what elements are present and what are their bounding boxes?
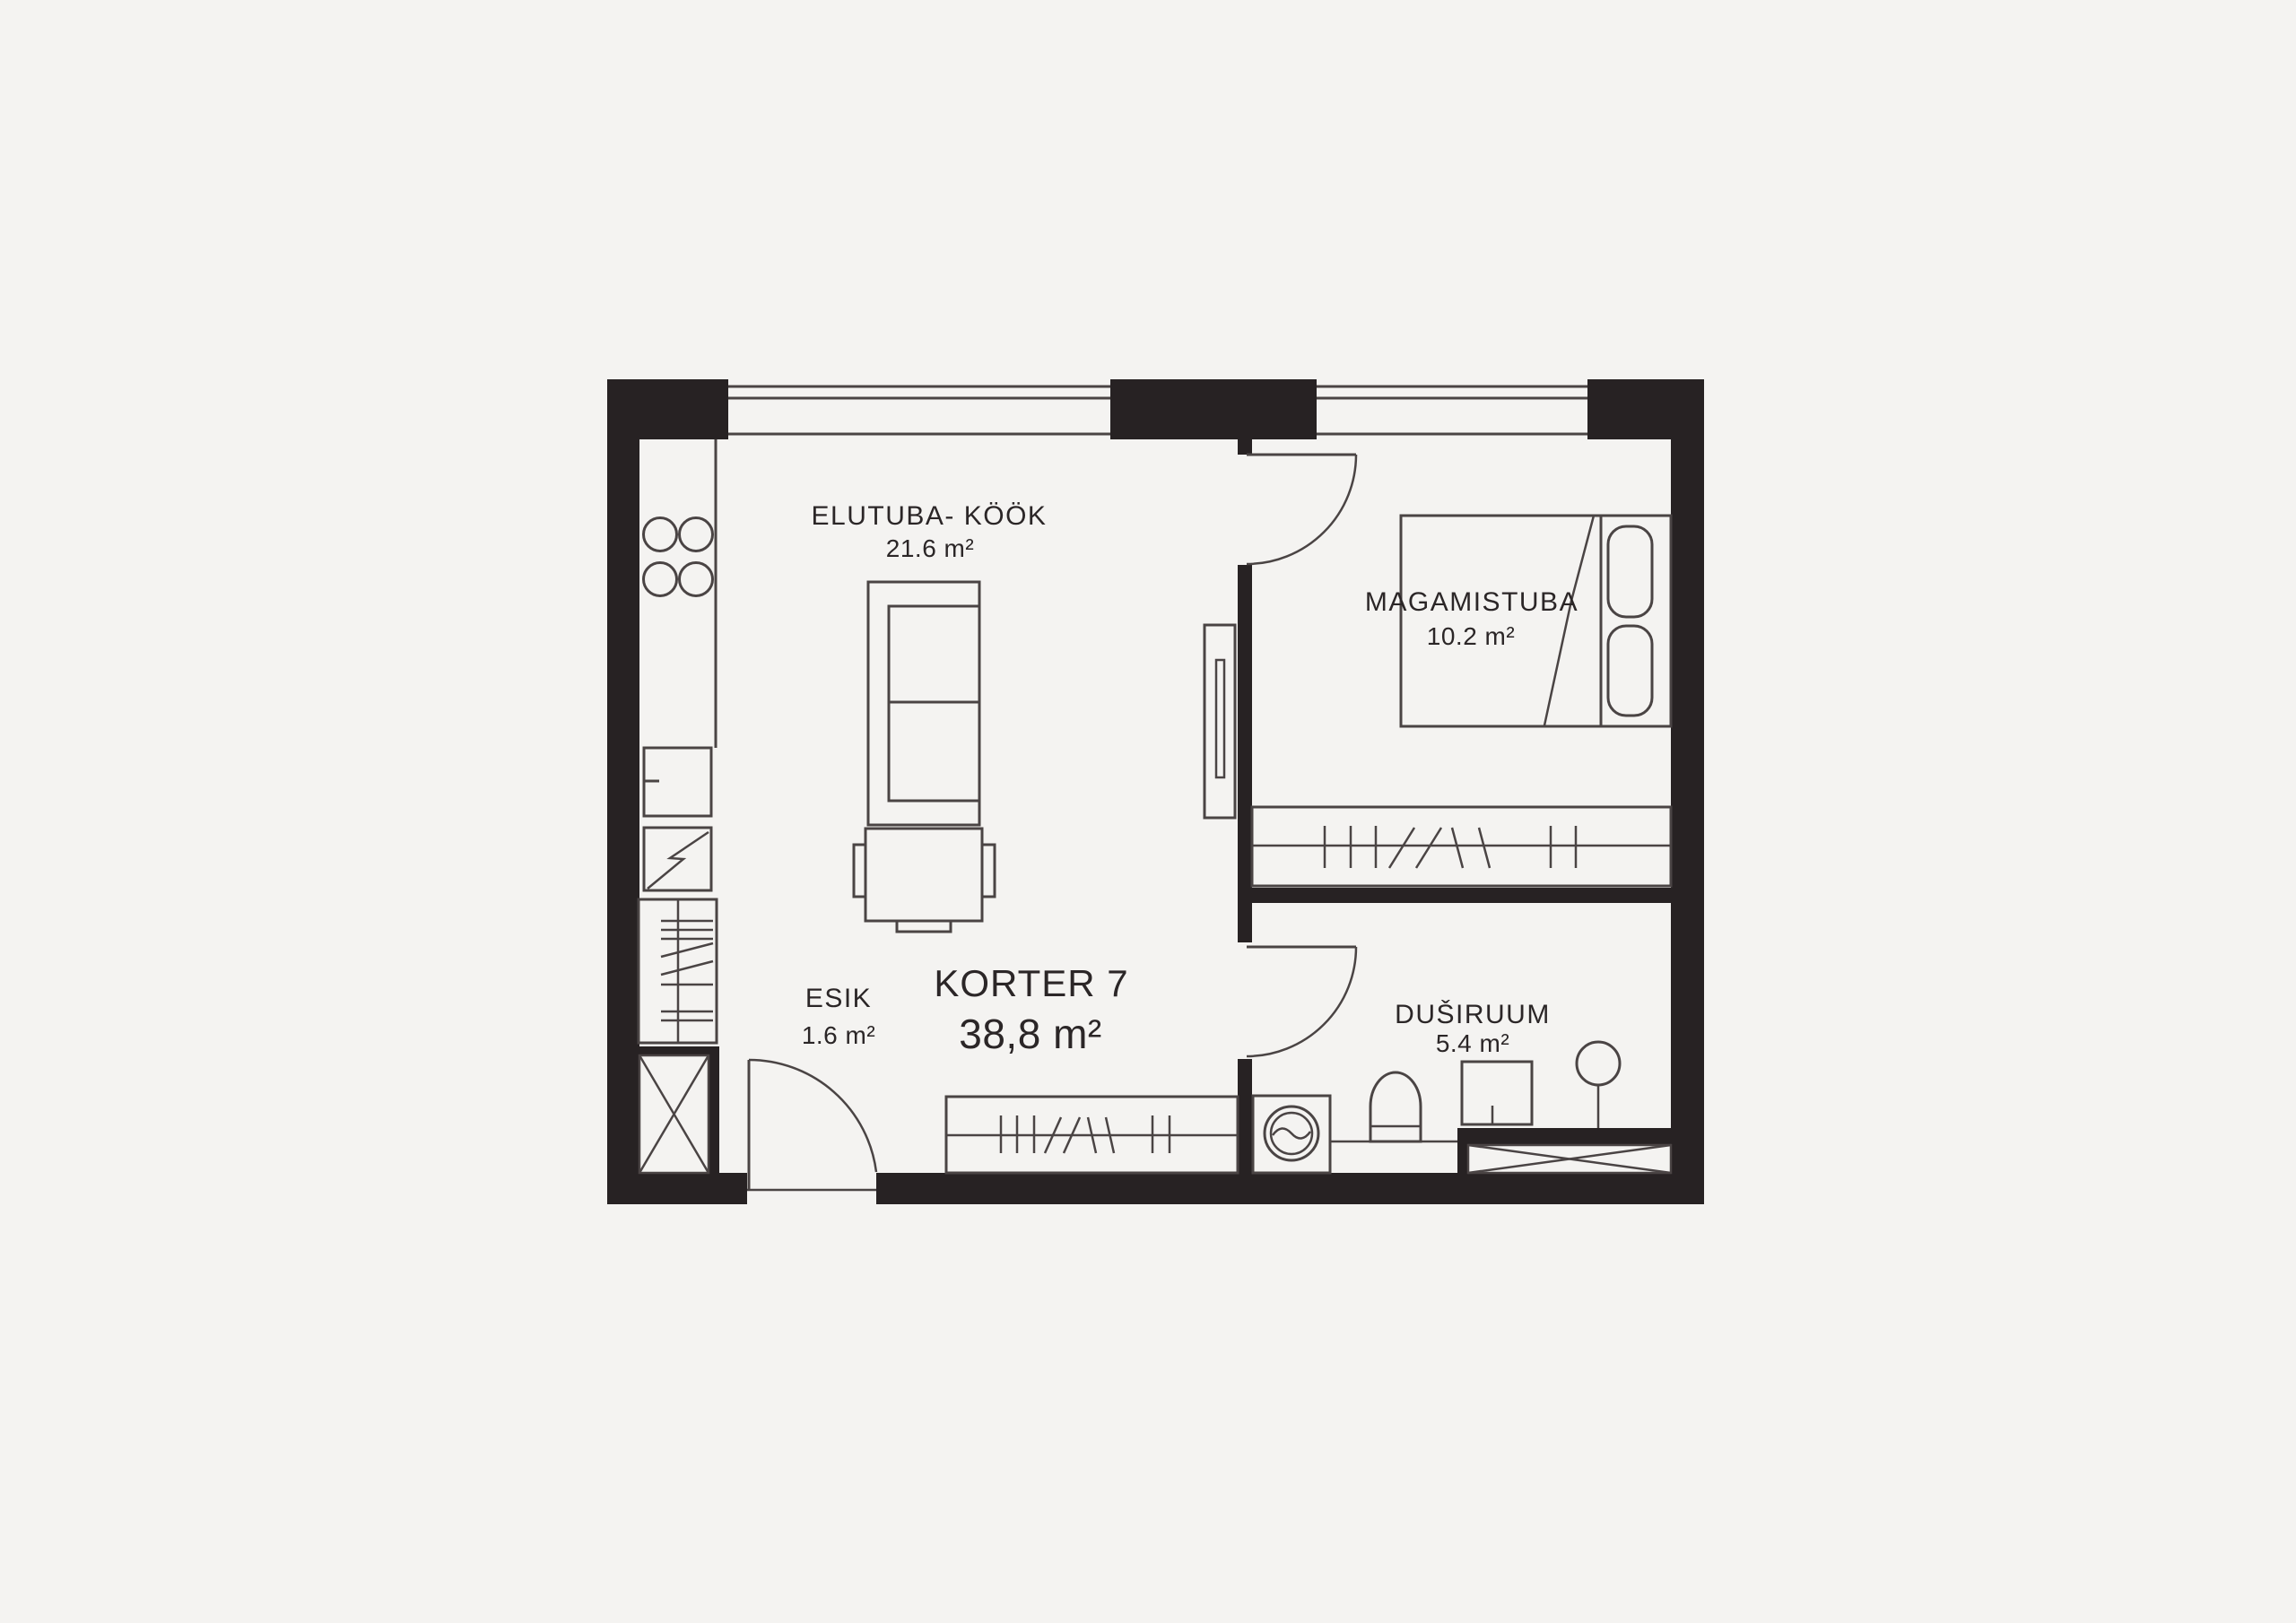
- hall-area: 1.6 m²: [802, 1021, 875, 1049]
- top-wall-corner-right: [1587, 379, 1704, 439]
- sofa-icon: [868, 582, 979, 825]
- bedroom-area: 10.2 m²: [1427, 622, 1515, 650]
- shower-room-label: DUŠIRUUM: [1395, 999, 1551, 1029]
- bathroom-door-swing-arc: [1247, 947, 1356, 1056]
- left-wall: [607, 379, 639, 1204]
- partition-stub-top: [1238, 439, 1252, 455]
- bedroom-door: [1247, 455, 1356, 564]
- boiler-appliance-icon: [644, 828, 711, 890]
- bottom-wall-right: [876, 1173, 1704, 1204]
- ventilation-shaft-icon: [639, 1055, 709, 1173]
- cooktop-icon: [644, 518, 713, 596]
- living-wardrobe-rail-icon: [946, 1097, 1238, 1173]
- apartment-total-area: 38,8 m²: [959, 1011, 1101, 1057]
- room-labels: ELUTUBA- KÖÖK 21.6 m² MAGAMISTUBA 10.2 m…: [802, 501, 1578, 1057]
- shower-tray-icon: [1468, 1145, 1671, 1173]
- hall-label: ESIK: [805, 984, 872, 1013]
- bedroom-label: MAGAMISTUBA: [1365, 587, 1578, 617]
- entry-door-swing-arc: [749, 1060, 876, 1172]
- bathroom-door: [1247, 947, 1356, 1056]
- bedroom-door-swing-arc: [1247, 455, 1356, 564]
- bedroom-wardrobe-rail-icon: [1252, 807, 1671, 886]
- shower-head-icon: [1577, 1042, 1620, 1128]
- top-wall-pier-middle: [1110, 379, 1317, 439]
- shower-wall-band: [1457, 1128, 1671, 1145]
- sink-cabinet-icon: [644, 748, 711, 816]
- window-living-room: [728, 386, 1110, 434]
- washing-machine-icon: [1253, 1096, 1330, 1173]
- toilet-icon: [1370, 1072, 1421, 1141]
- entry-door: [747, 1060, 876, 1190]
- floor-plan-drawing: ELUTUBA- KÖÖK 21.6 m² MAGAMISTUBA 10.2 m…: [0, 0, 2296, 1623]
- bed-icon: [1401, 516, 1671, 726]
- bedroom-bath-divider-wall: [1252, 888, 1671, 903]
- living-room-label: ELUTUBA- KÖÖK: [812, 501, 1048, 531]
- pillow-icon: [1608, 526, 1652, 617]
- floor-plan: ELUTUBA- KÖÖK 21.6 m² MAGAMISTUBA 10.2 m…: [0, 0, 2296, 1623]
- top-wall-corner-left: [607, 379, 728, 439]
- shower-wall-stub: [1457, 1128, 1468, 1173]
- tv-unit-icon: [1205, 625, 1235, 818]
- living-room-area: 21.6 m²: [886, 534, 974, 562]
- shaft-frame-right: [709, 1046, 719, 1173]
- shower-room-area: 5.4 m²: [1436, 1029, 1509, 1057]
- bottom-wall-left: [607, 1173, 747, 1204]
- window-bedroom: [1317, 386, 1587, 434]
- apartment-title: KORTER 7: [934, 962, 1128, 1004]
- outer-walls: [607, 379, 1704, 1204]
- partition-bottom: [1238, 1059, 1252, 1173]
- bathroom-sink-icon: [1462, 1062, 1532, 1124]
- armchair-icon: [854, 829, 995, 932]
- hall-wardrobe-rail-icon: [639, 899, 717, 1043]
- partition-middle: [1238, 565, 1252, 942]
- pillow-icon: [1608, 626, 1652, 716]
- right-wall: [1671, 379, 1704, 1204]
